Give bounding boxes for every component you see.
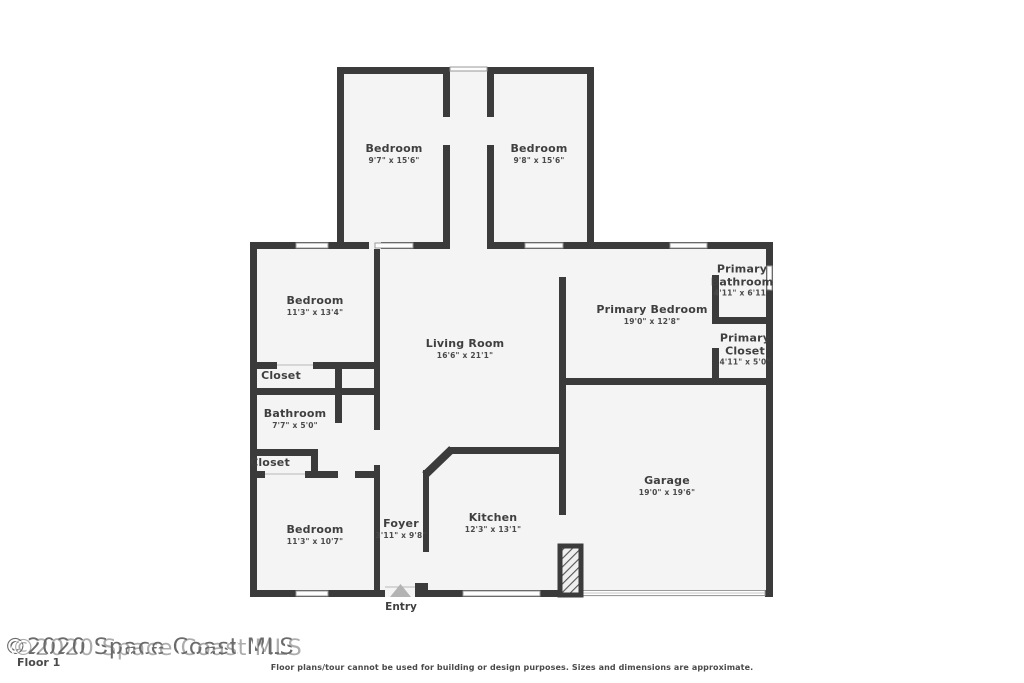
room-name: Bedroom xyxy=(286,294,343,308)
floorplan-drawing xyxy=(0,0,1024,683)
room-name: Bedroom xyxy=(286,523,343,537)
room-dims: 9'8" x 15'6" xyxy=(514,156,565,166)
room-label-primary-closet: Primary Closet 4'11" x 5'0" xyxy=(708,332,782,367)
room-name: Bedroom xyxy=(510,142,567,156)
room-label-bedroom-1: Bedroom 9'7" x 15'6" xyxy=(365,142,422,166)
room-name: Living Room xyxy=(426,337,505,351)
room-dims: 11'3" x 10'7" xyxy=(287,537,343,547)
room-dims: 3'11" x 9'8" xyxy=(376,531,427,541)
room-label-foyer: Foyer 3'11" x 9'8" xyxy=(376,517,427,541)
floorplan-page: Bedroom 9'7" x 15'6" Bedroom 9'8" x 15'6… xyxy=(0,0,1024,683)
room-label-bathroom: Bathroom 7'7" x 5'0" xyxy=(264,407,327,431)
room-label-bedroom-3: Bedroom 11'3" x 13'4" xyxy=(286,294,343,318)
entry-label: Entry xyxy=(385,601,417,613)
room-label-living-room: Living Room 16'6" x 21'1" xyxy=(426,337,505,361)
room-dims: 19'0" x 12'8" xyxy=(624,317,680,327)
room-name: Kitchen xyxy=(469,511,518,525)
room-dims: 4'11" x 6'11" xyxy=(714,289,770,299)
room-name: Primary Bedroom xyxy=(596,303,707,317)
room-name: Garage xyxy=(644,474,690,488)
room-label-primary-bedroom: Primary Bedroom 19'0" x 12'8" xyxy=(596,303,707,327)
room-label-closet-2: Closet xyxy=(250,456,290,470)
room-label-bedroom-4: Bedroom 11'3" x 10'7" xyxy=(286,523,343,547)
room-dims: 19'0" x 19'6" xyxy=(639,488,695,498)
room-dims: 4'11" x 5'0" xyxy=(720,358,771,368)
garage-door-line xyxy=(583,591,765,596)
room-label-bedroom-2: Bedroom 9'8" x 15'6" xyxy=(510,142,567,166)
room-dims: 7'7" x 5'0" xyxy=(272,421,318,431)
water-heater xyxy=(560,546,581,595)
room-name: Bedroom xyxy=(365,142,422,156)
room-name: Primary Bathroom xyxy=(705,263,779,288)
room-name: Closet xyxy=(250,456,290,470)
disclaimer-text: Floor plans/tour cannot be used for buil… xyxy=(0,663,1024,672)
room-name: Primary Closet xyxy=(708,332,782,357)
room-dims: 12'3" x 13'1" xyxy=(465,525,521,535)
room-name: Foyer xyxy=(383,517,419,531)
room-dims: 11'3" x 13'4" xyxy=(287,308,343,318)
room-label-primary-bathroom: Primary Bathroom 4'11" x 6'11" xyxy=(705,263,779,298)
room-label-kitchen: Kitchen 12'3" x 13'1" xyxy=(465,511,521,535)
room-label-closet-1: Closet xyxy=(261,369,301,383)
room-name: Closet xyxy=(261,369,301,383)
room-name: Bathroom xyxy=(264,407,327,421)
room-dims: 16'6" x 21'1" xyxy=(437,351,493,361)
room-label-garage: Garage 19'0" x 19'6" xyxy=(639,474,695,498)
room-dims: 9'7" x 15'6" xyxy=(369,156,420,166)
